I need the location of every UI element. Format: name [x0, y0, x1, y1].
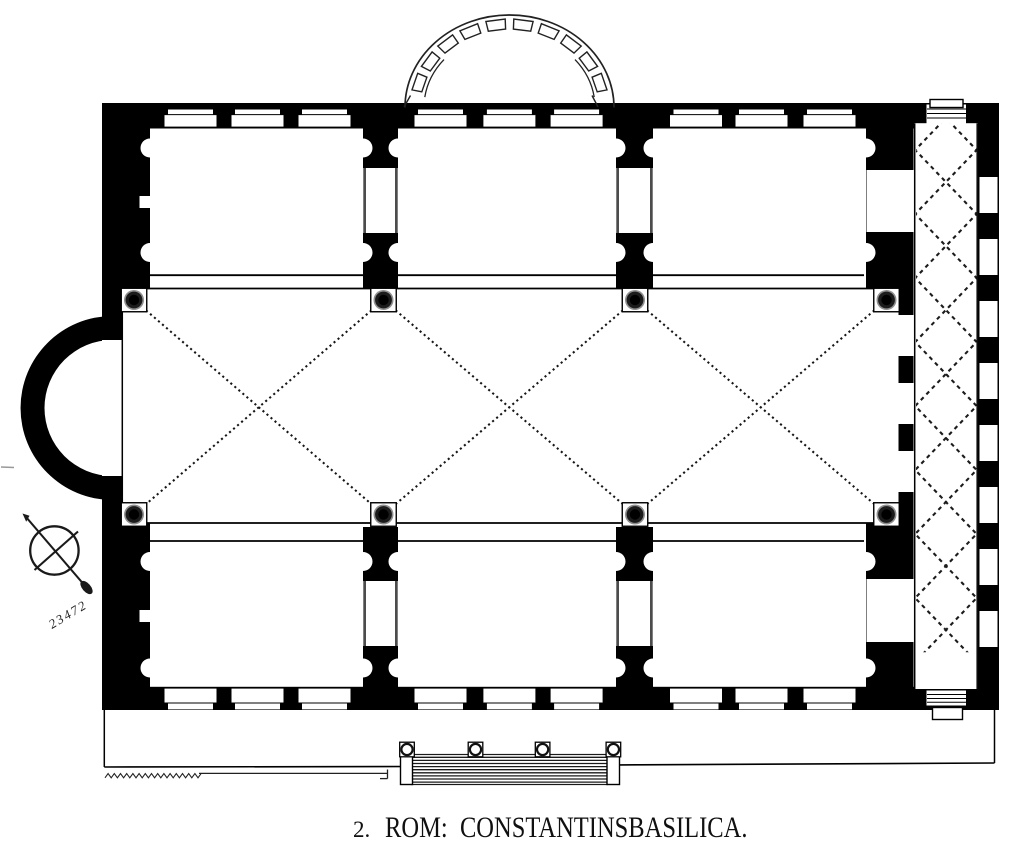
svg-text:2.: 2.	[353, 817, 370, 842]
svg-text:ROM: CONSTANTINSBASILICA.: ROM: CONSTANTINSBASILICA.	[385, 812, 748, 844]
